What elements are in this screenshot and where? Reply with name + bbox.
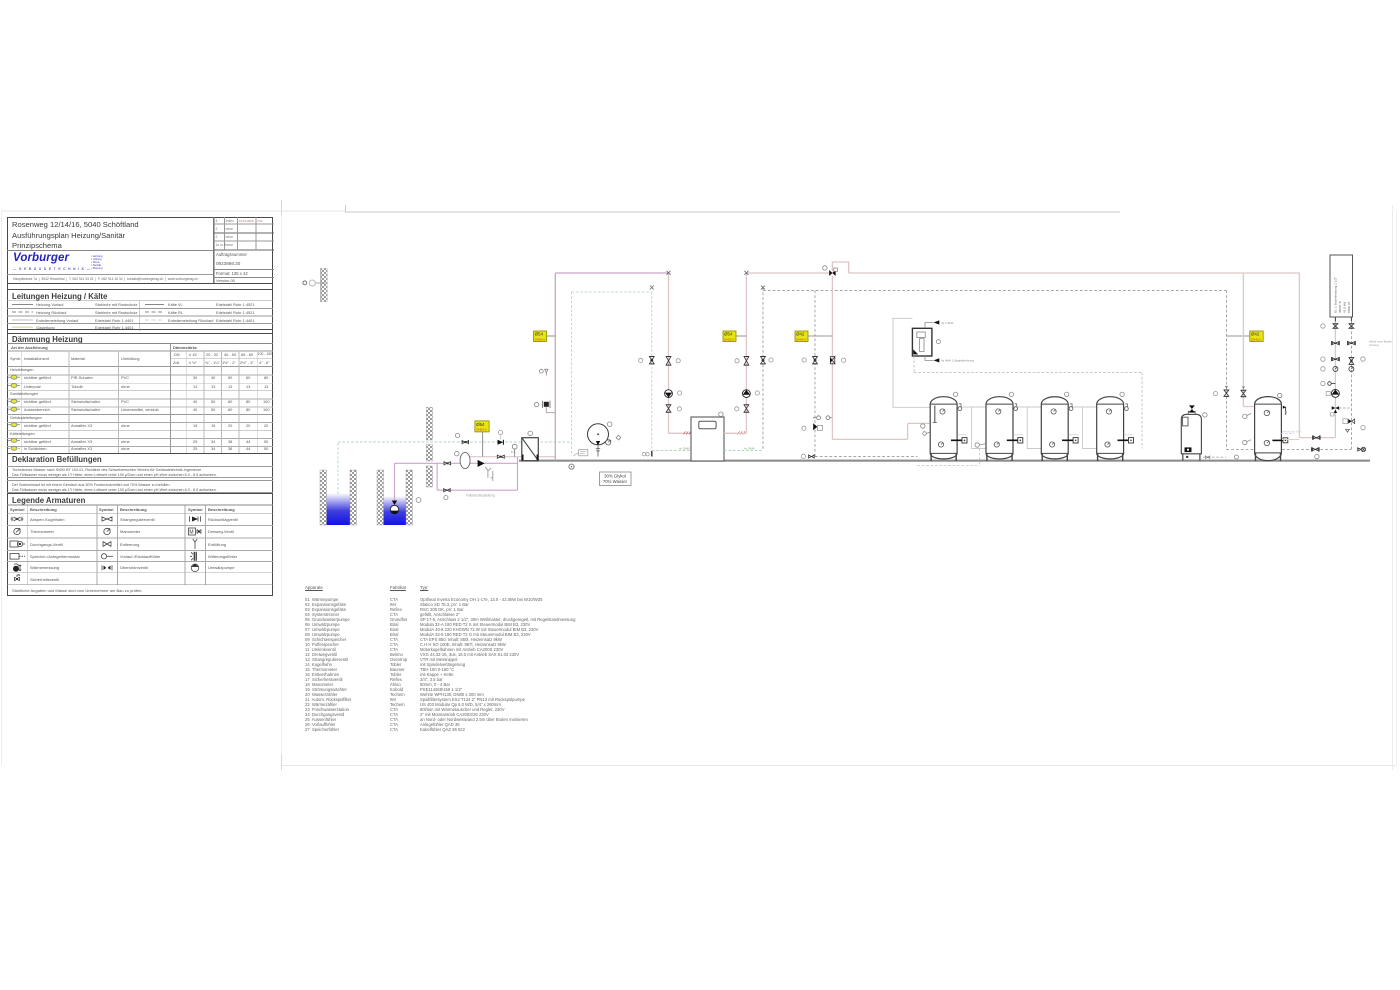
svg-text:Ø42: Ø42: [1251, 332, 1260, 337]
svg-text:P800 l/h: P800 l/h: [1347, 301, 1351, 313]
svg-text:41.5 kW: 41.5 kW: [1343, 302, 1347, 313]
svg-text:35/28 °C: 35/28 °C: [1338, 300, 1342, 313]
svg-text:4x 4kW 1 Begleitheizung: 4x 4kW 1 Begleitheizung: [941, 359, 974, 363]
svg-text:Ø54: Ø54: [724, 332, 733, 337]
svg-text:Ø54: Ø54: [535, 332, 544, 337]
svg-text:4x DN40: 4x DN40: [744, 446, 755, 450]
svg-text:DN50.0: DN50.0: [535, 337, 546, 341]
svg-text:DN50.0: DN50.0: [724, 337, 735, 341]
svg-text:Ø54: Ø54: [476, 422, 485, 427]
svg-text:heizung: heizung: [1369, 343, 1379, 347]
svg-text:4x 1.5kW: 4x 1.5kW: [941, 321, 954, 325]
svg-text:4x DN40: 4x DN40: [679, 446, 690, 450]
svg-text:Ø42: Ø42: [796, 332, 805, 337]
svg-text:Gr. 1 Bodenheizung 1 1/2": Gr. 1 Bodenheizung 1 1/2": [1334, 277, 1338, 313]
svg-text:Füllanschlussleitung: Füllanschlussleitung: [466, 493, 495, 497]
svg-text:DN40.0: DN40.0: [796, 337, 807, 341]
svg-text:70% Wasser: 70% Wasser: [603, 479, 628, 484]
svg-text:30% Glykol: 30% Glykol: [604, 474, 626, 479]
svg-text:DN40.0: DN40.0: [1251, 337, 1262, 341]
svg-text:DN50.0: DN50.0: [476, 428, 487, 432]
